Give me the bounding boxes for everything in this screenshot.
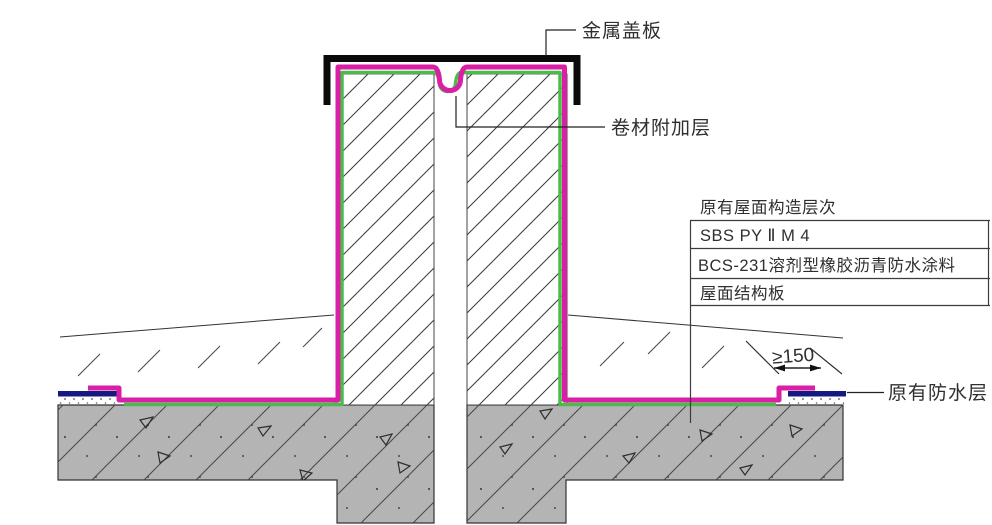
existing-membrane-left [58,391,117,397]
label-existing-waterproofing: 原有防水层 [888,382,988,404]
layer-table-row-3: 屋面结构板 [700,284,785,303]
stipple-left [58,397,117,405]
stipple-right [788,397,846,405]
callout-metal-cover: 金属盖板 [546,20,662,56]
dimension-text: ≥150 [771,345,815,369]
slope-line-right [568,315,843,338]
joint-wall-left [336,74,434,405]
slab-right-hatch [467,405,843,523]
label-membrane-patch: 卷材附加层 [611,117,711,139]
layer-table-row-2: BCS-231溶剂型橡胶沥青防水涂料 [698,256,955,275]
dimension-overlap: ≥150 [746,341,842,374]
layer-table-title: 原有屋面构造层次 [700,198,836,217]
dimension-ext-right [810,348,842,374]
leader-metal-cover [546,30,576,56]
callout-existing-waterproofing: 原有防水层 [847,382,988,404]
slope-line-left [60,315,334,337]
label-metal-cover: 金属盖板 [582,20,662,42]
layer-table-row-1: SBS PY Ⅱ M 4 [700,227,810,245]
expansion-joint-detail-drawing: 金属盖板 卷材附加层 原有屋面构造层次 SBS PY Ⅱ M 4 BCS-231… [0,0,992,525]
screed-slope [60,315,843,376]
detail-drawing-canvas: 金属盖板 卷材附加层 原有屋面构造层次 SBS PY Ⅱ M 4 BCS-231… [0,0,992,525]
roof-structural-slab [58,405,843,523]
existing-membrane-right [788,391,846,397]
slab-left-hatch [58,405,434,523]
joint-wall-right [467,74,567,405]
